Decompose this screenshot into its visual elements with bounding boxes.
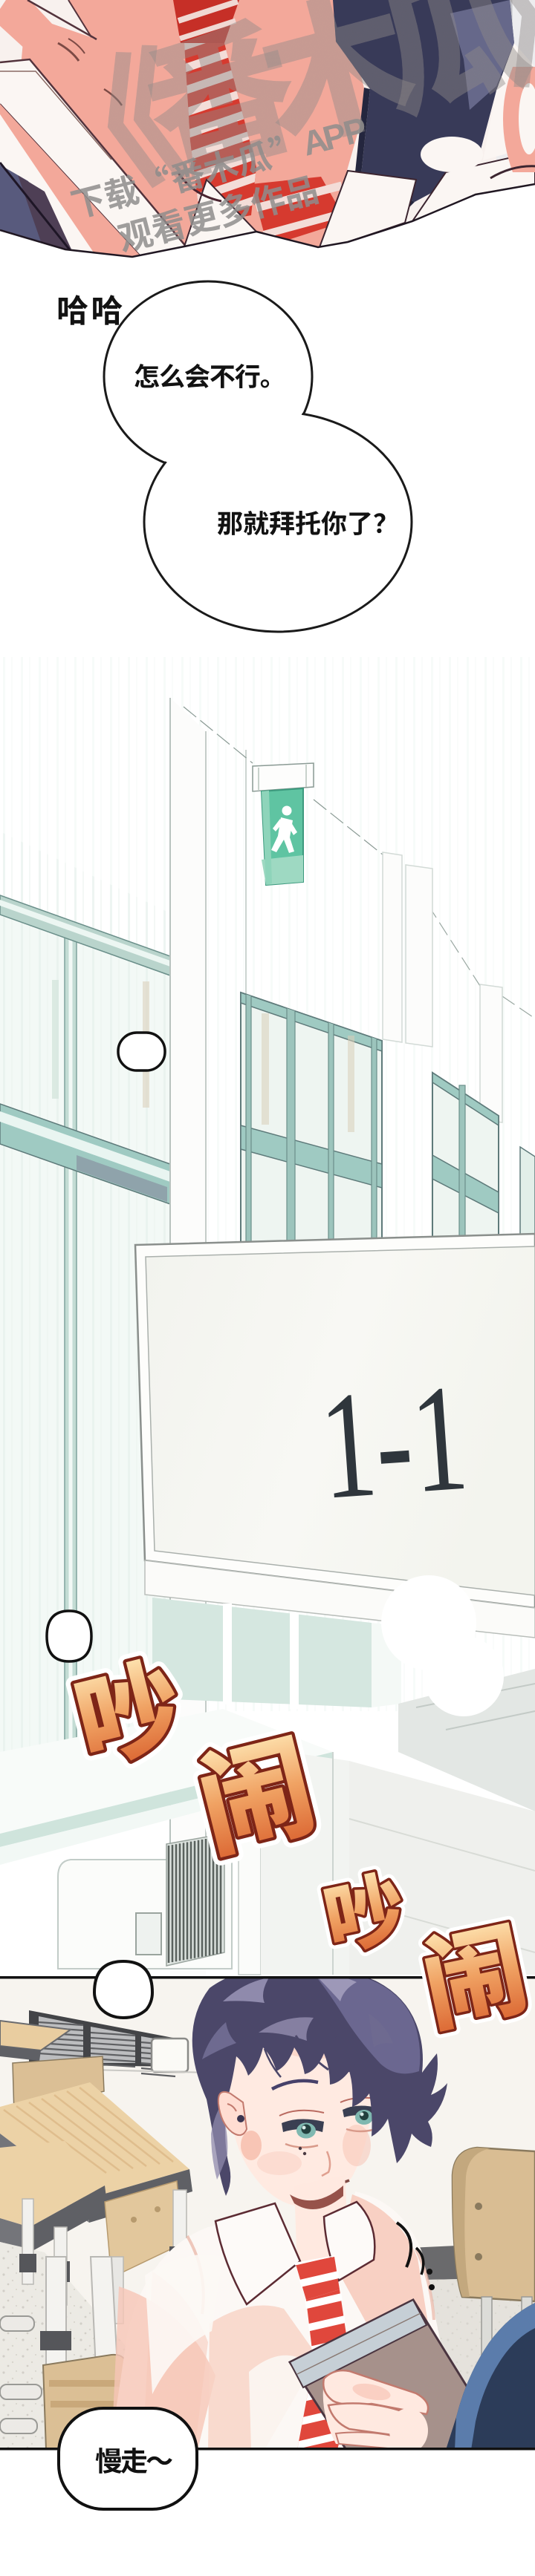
svg-text:1-1: 1-1 — [315, 1352, 473, 1531]
